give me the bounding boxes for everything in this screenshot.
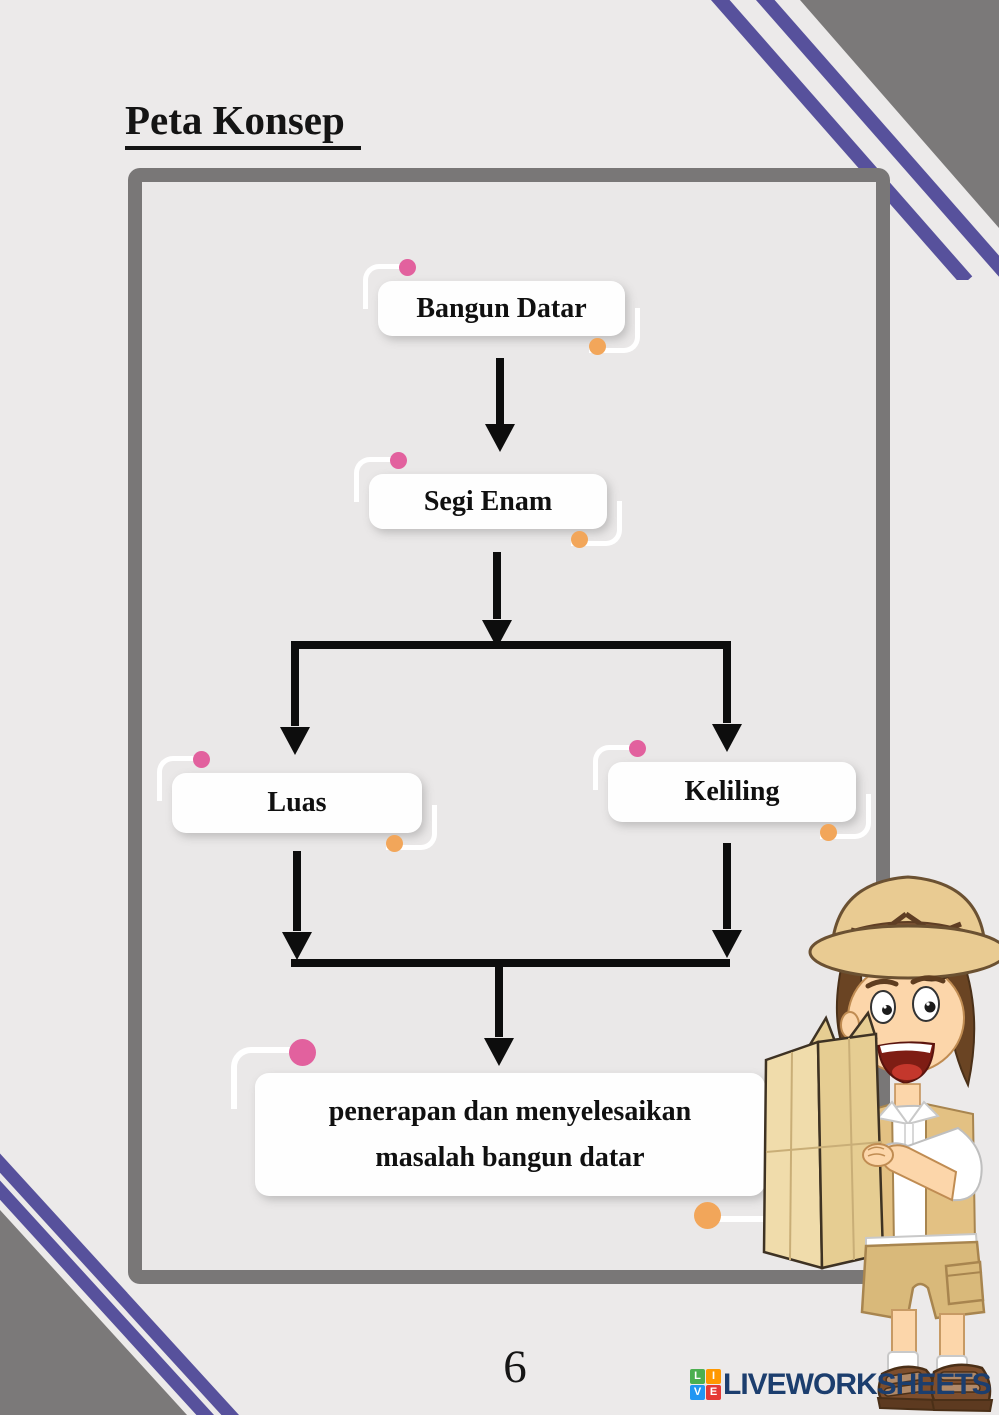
accent-dot-orange xyxy=(694,1202,721,1229)
logo-square-e: E xyxy=(706,1385,721,1400)
node-label: penerapan dan menyelesaikan masalah bang… xyxy=(283,1089,737,1180)
brand-name: LIVEWORKSHEETS xyxy=(723,1370,991,1400)
accent-dot-orange xyxy=(589,338,606,355)
accent-dot-pink xyxy=(289,1039,316,1066)
logo-square-i: I xyxy=(706,1369,721,1384)
accent-dot-orange xyxy=(386,835,403,852)
node-luas: Luas xyxy=(172,773,422,833)
accent-dot-pink xyxy=(399,259,416,276)
accent-dot-pink xyxy=(193,751,210,768)
liveworksheets-logo: L I V E LIVEWORKSHEETS xyxy=(690,1369,991,1400)
node-segi-enam: Segi Enam xyxy=(369,474,607,529)
node-label: Keliling xyxy=(685,776,780,808)
page-title: Peta Konsep xyxy=(125,98,361,150)
node-label: Bangun Datar xyxy=(416,293,586,325)
node-keliling: Keliling xyxy=(608,762,856,822)
logo-square-l: L xyxy=(690,1369,705,1384)
page-number: 6 xyxy=(470,1340,560,1394)
node-label: Luas xyxy=(267,787,326,819)
node-bangun-datar: Bangun Datar xyxy=(378,281,625,336)
accent-dot-pink xyxy=(629,740,646,757)
node-label: Segi Enam xyxy=(424,486,552,518)
logo-square-v: V xyxy=(690,1385,705,1400)
accent-dot-orange xyxy=(820,824,837,841)
accent-dot-pink xyxy=(390,452,407,469)
worksheet-page: Peta Konsep xyxy=(0,0,999,1415)
corner-bracket-bottom-right xyxy=(717,1160,789,1222)
node-penerapan: penerapan dan menyelesaikan masalah bang… xyxy=(255,1073,765,1196)
accent-dot-orange xyxy=(571,531,588,548)
liveworksheets-logo-icon: L I V E xyxy=(690,1369,721,1400)
